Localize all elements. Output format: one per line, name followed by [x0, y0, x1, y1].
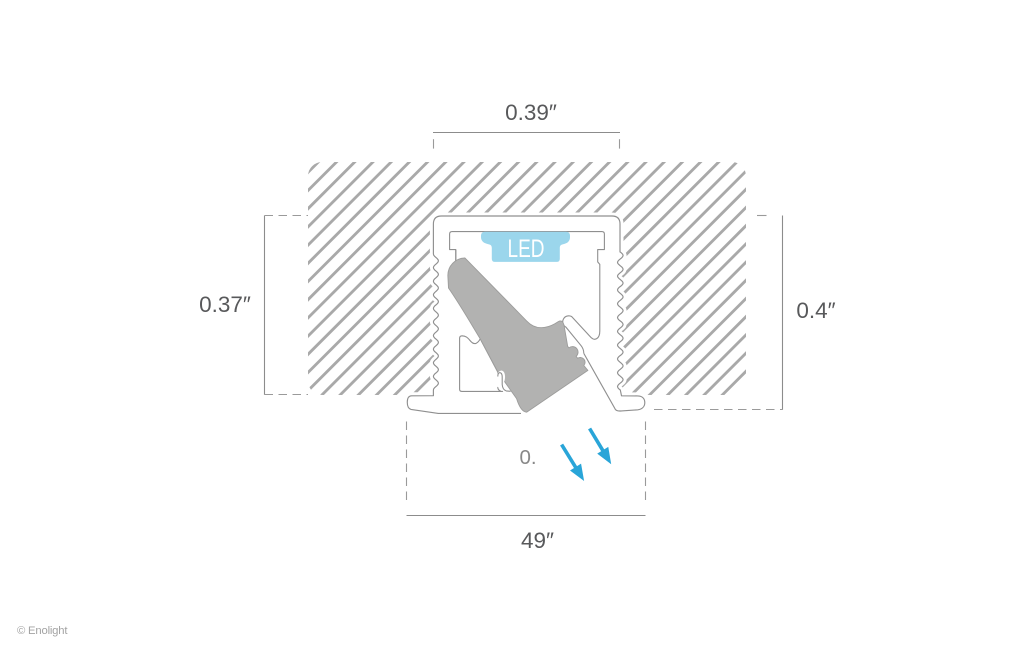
- svg-text:0.: 0.: [520, 446, 537, 469]
- svg-text:© Enolight: © Enolight: [17, 625, 68, 637]
- svg-text:49″: 49″: [521, 528, 554, 553]
- svg-text:0.39″: 0.39″: [505, 100, 557, 125]
- svg-text:0.37″: 0.37″: [199, 292, 251, 317]
- svg-text:LED: LED: [508, 235, 545, 263]
- svg-text:0.4″: 0.4″: [796, 298, 835, 323]
